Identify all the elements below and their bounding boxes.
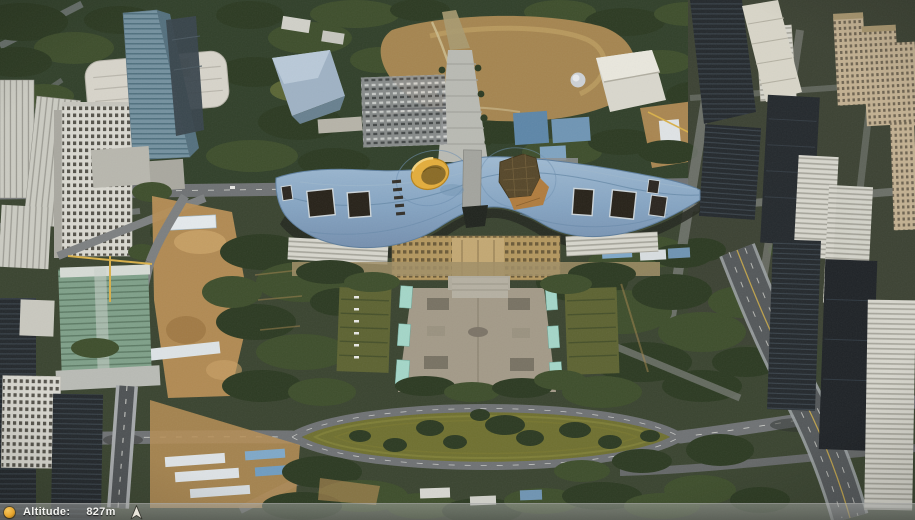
map-window: Altitude: 827m bbox=[0, 0, 915, 520]
map-3d-view[interactable] bbox=[0, 0, 915, 520]
globe-status-icon bbox=[4, 507, 15, 518]
north-arrow-icon[interactable] bbox=[130, 505, 143, 520]
aerial-scene bbox=[0, 0, 915, 520]
status-bar: Altitude: 827m bbox=[0, 503, 915, 520]
altitude-label: Altitude: bbox=[23, 504, 70, 520]
altitude-value: 827m bbox=[86, 504, 115, 520]
vignette bbox=[0, 0, 915, 520]
